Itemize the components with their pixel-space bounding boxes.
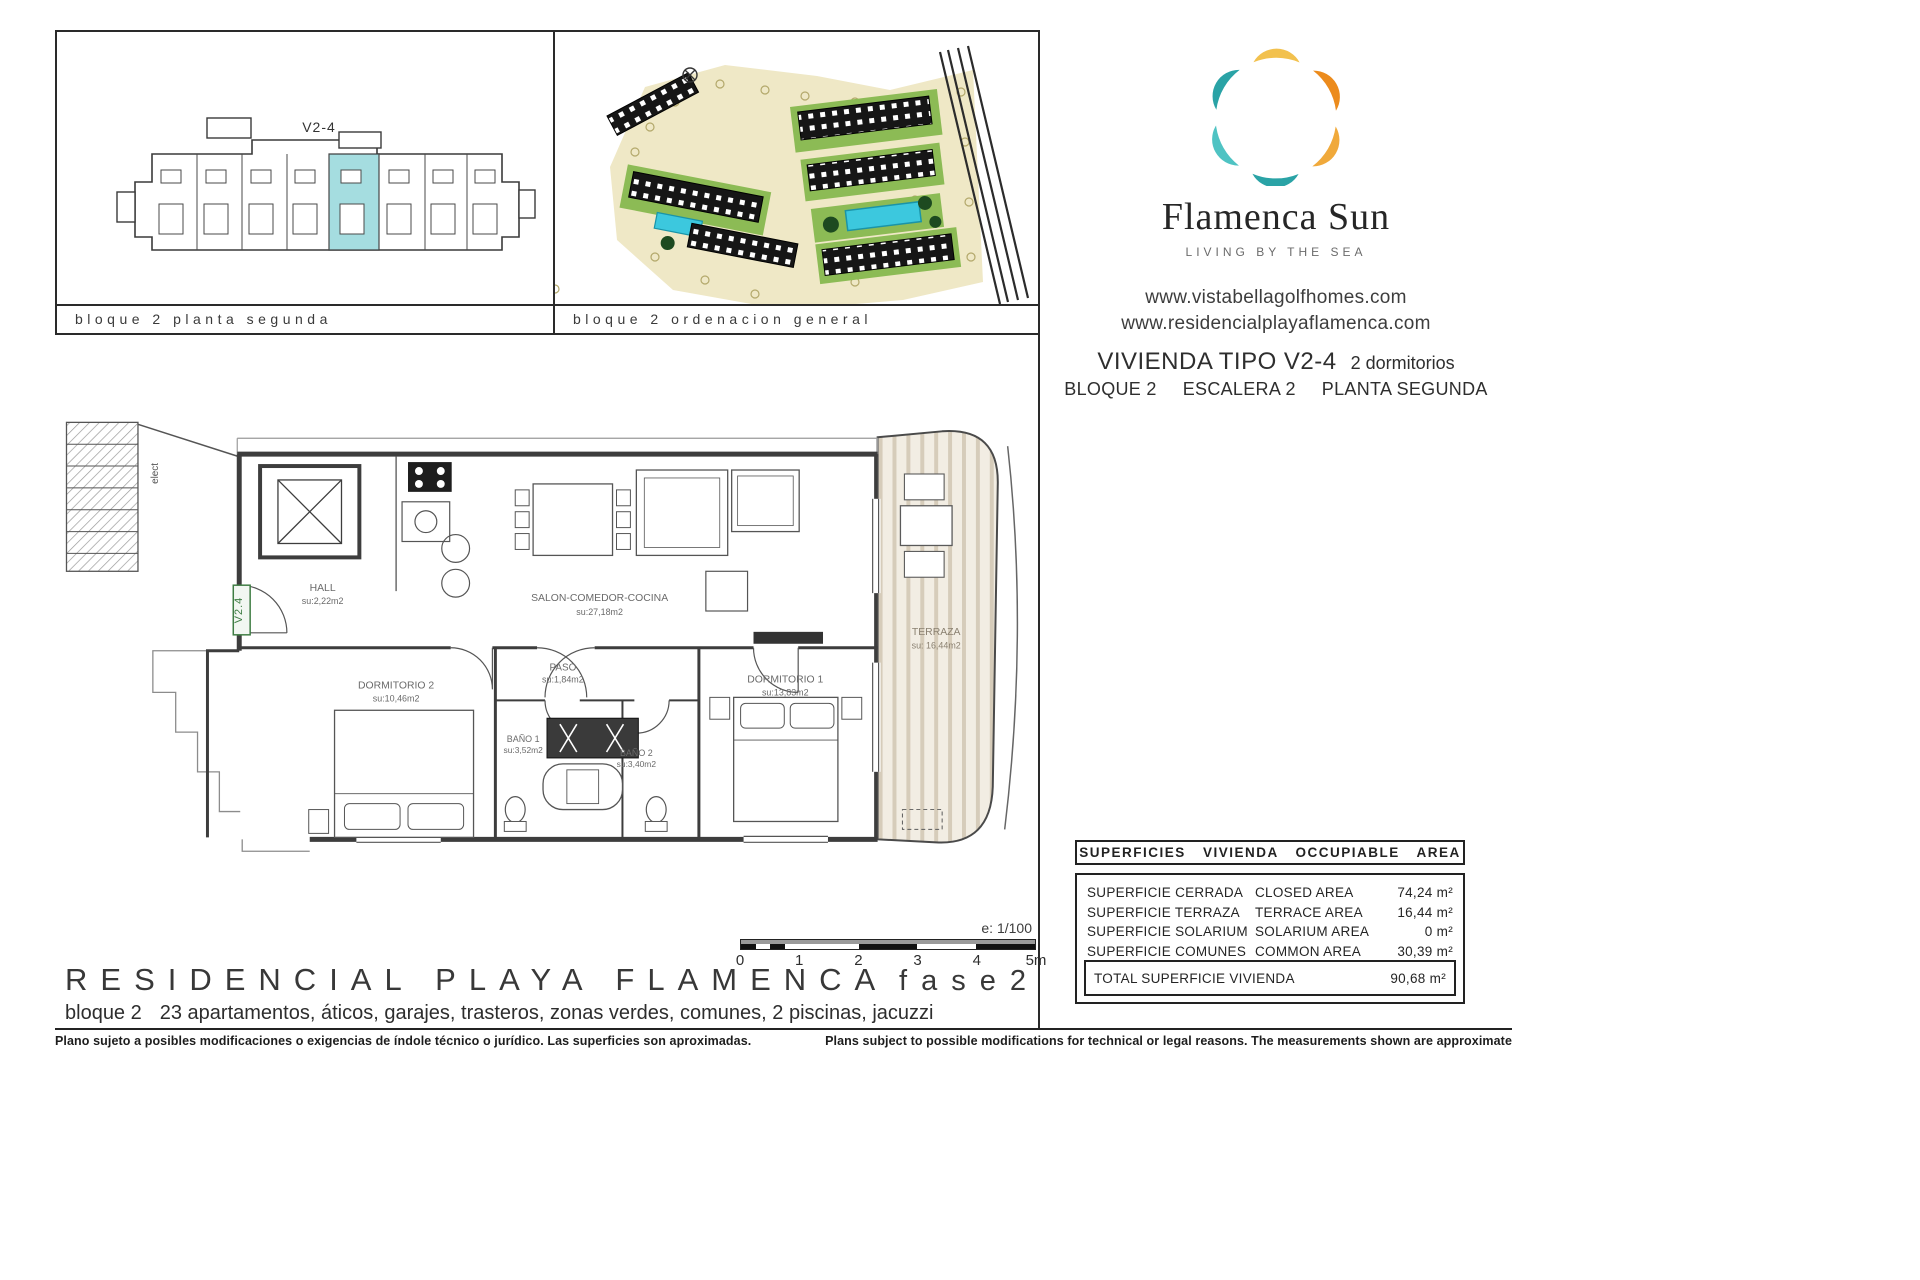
table-row: SUPERFICIE SOLARIUM SOLARIUM AREA 0 m²	[1077, 922, 1463, 942]
brand-tagline: LIVING BY THE SEA	[1042, 245, 1510, 259]
svg-text:su:27,18m2: su:27,18m2	[576, 607, 623, 617]
unit-escalera: ESCALERA 2	[1183, 379, 1296, 399]
svg-text:su:1,84m2: su:1,84m2	[542, 674, 584, 684]
panel-block-plan: V2-4 bloque 2 planta segunda	[55, 30, 555, 335]
svg-text:su:3,52m2: su:3,52m2	[504, 745, 544, 755]
svg-text:V2.4: V2.4	[233, 597, 245, 623]
site-plan-drawing	[555, 32, 1038, 306]
disclaimer: Plano sujeto a posibles modificaciones o…	[55, 1028, 1512, 1048]
project-description: bloque 223 apartamentos, áticos, garajes…	[65, 1002, 1040, 1025]
unit-bloque: BLOQUE 2	[1064, 379, 1156, 399]
unit-planta: PLANTA SEGUNDA	[1322, 379, 1488, 399]
table-row: SUPERFICIE TERRAZA TERRACE AREA 16,44 m²	[1077, 903, 1463, 923]
svg-text:su:10,46m2: su:10,46m2	[373, 693, 420, 703]
dining-set	[515, 484, 630, 555]
svg-text:su: 16,44m2: su: 16,44m2	[912, 641, 961, 651]
hob-icon	[408, 462, 452, 492]
disclaimer-es: Plano sujeto a posibles modificaciones o…	[55, 1034, 751, 1048]
fase-label: fase2	[899, 965, 1040, 998]
block-plan-drawing: V2-4	[57, 32, 553, 306]
room-label-bano1: BAÑO 1	[507, 734, 540, 744]
scale-label: e: 1/100	[740, 920, 1036, 936]
room-label-bano2: BAÑO 2	[620, 748, 653, 758]
bathtub	[543, 764, 622, 810]
elect-label: elect	[150, 463, 161, 484]
tv-unit	[754, 632, 823, 644]
room-label-dorm2: DORMITORIO 2	[358, 680, 434, 691]
room-label-dorm1: DORMITORIO 1	[747, 674, 823, 685]
room-label-terraza: TERRAZA	[912, 627, 961, 638]
room-label-paso: PASO	[549, 663, 576, 674]
utility-shafts: elect	[66, 422, 237, 571]
unit-info: VIVIENDA TIPO V2-42 dormitorios BLOQUE 2…	[1042, 348, 1510, 400]
svg-text:su:13,83m2: su:13,83m2	[762, 687, 809, 697]
stair-core	[260, 466, 359, 557]
toilet-1	[505, 797, 525, 823]
panel1-caption: bloque 2 planta segunda	[57, 304, 553, 333]
url-vistabella[interactable]: www.vistabellagolfhomes.com	[1042, 285, 1510, 311]
panel-site-plan: bloque 2 ordenacion general	[553, 30, 1040, 335]
project-title: RESIDENCIAL PLAYA FLAMENCA	[65, 962, 888, 998]
panel2-caption: bloque 2 ordenacion general	[555, 304, 1038, 333]
disclaimer-en: Plans subject to possible modifications …	[825, 1034, 1512, 1048]
unit-tag-label: V2-4	[302, 119, 336, 135]
flamenca-sun-logo	[1042, 48, 1510, 191]
surfaces-table: SUPERFICIE CERRADA CLOSED AREA 74,24 m² …	[1075, 873, 1465, 1004]
highlighted-unit	[329, 154, 379, 250]
unit-title: VIVIENDA TIPO V2-4	[1097, 348, 1336, 375]
table-row: SUPERFICIE COMUNES COMMON AREA 30,39 m²	[1077, 942, 1463, 962]
svg-text:su:3,40m2: su:3,40m2	[617, 759, 657, 769]
total-row: TOTAL SUPERFICIE VIVIENDA 90,68 m²	[1084, 960, 1456, 996]
scale-bar-graphic	[740, 939, 1036, 950]
unit-bedrooms: 2 dormitorios	[1351, 353, 1455, 373]
table-row: SUPERFICIE CERRADA CLOSED AREA 74,24 m²	[1077, 883, 1463, 903]
plan-sheet: V2-4 bloque 2 planta segunda	[0, 0, 1920, 1280]
room-label-salon: SALON-COMEDOR-COCINA	[531, 593, 668, 604]
toilet-2	[646, 797, 666, 823]
surfaces-header: SUPERFICIES VIVIENDA OCCUPIABLE AREA	[1075, 840, 1465, 865]
entrance-tag: V2.4	[233, 585, 250, 635]
sink-unit	[402, 502, 450, 542]
room-label-hall: HALL	[310, 583, 336, 594]
svg-text:su:2,22m2: su:2,22m2	[302, 596, 344, 606]
url-residencial[interactable]: www.residencialplayaflamenca.com	[1042, 311, 1510, 337]
brand-name: Flamenca Sun	[1042, 195, 1510, 239]
